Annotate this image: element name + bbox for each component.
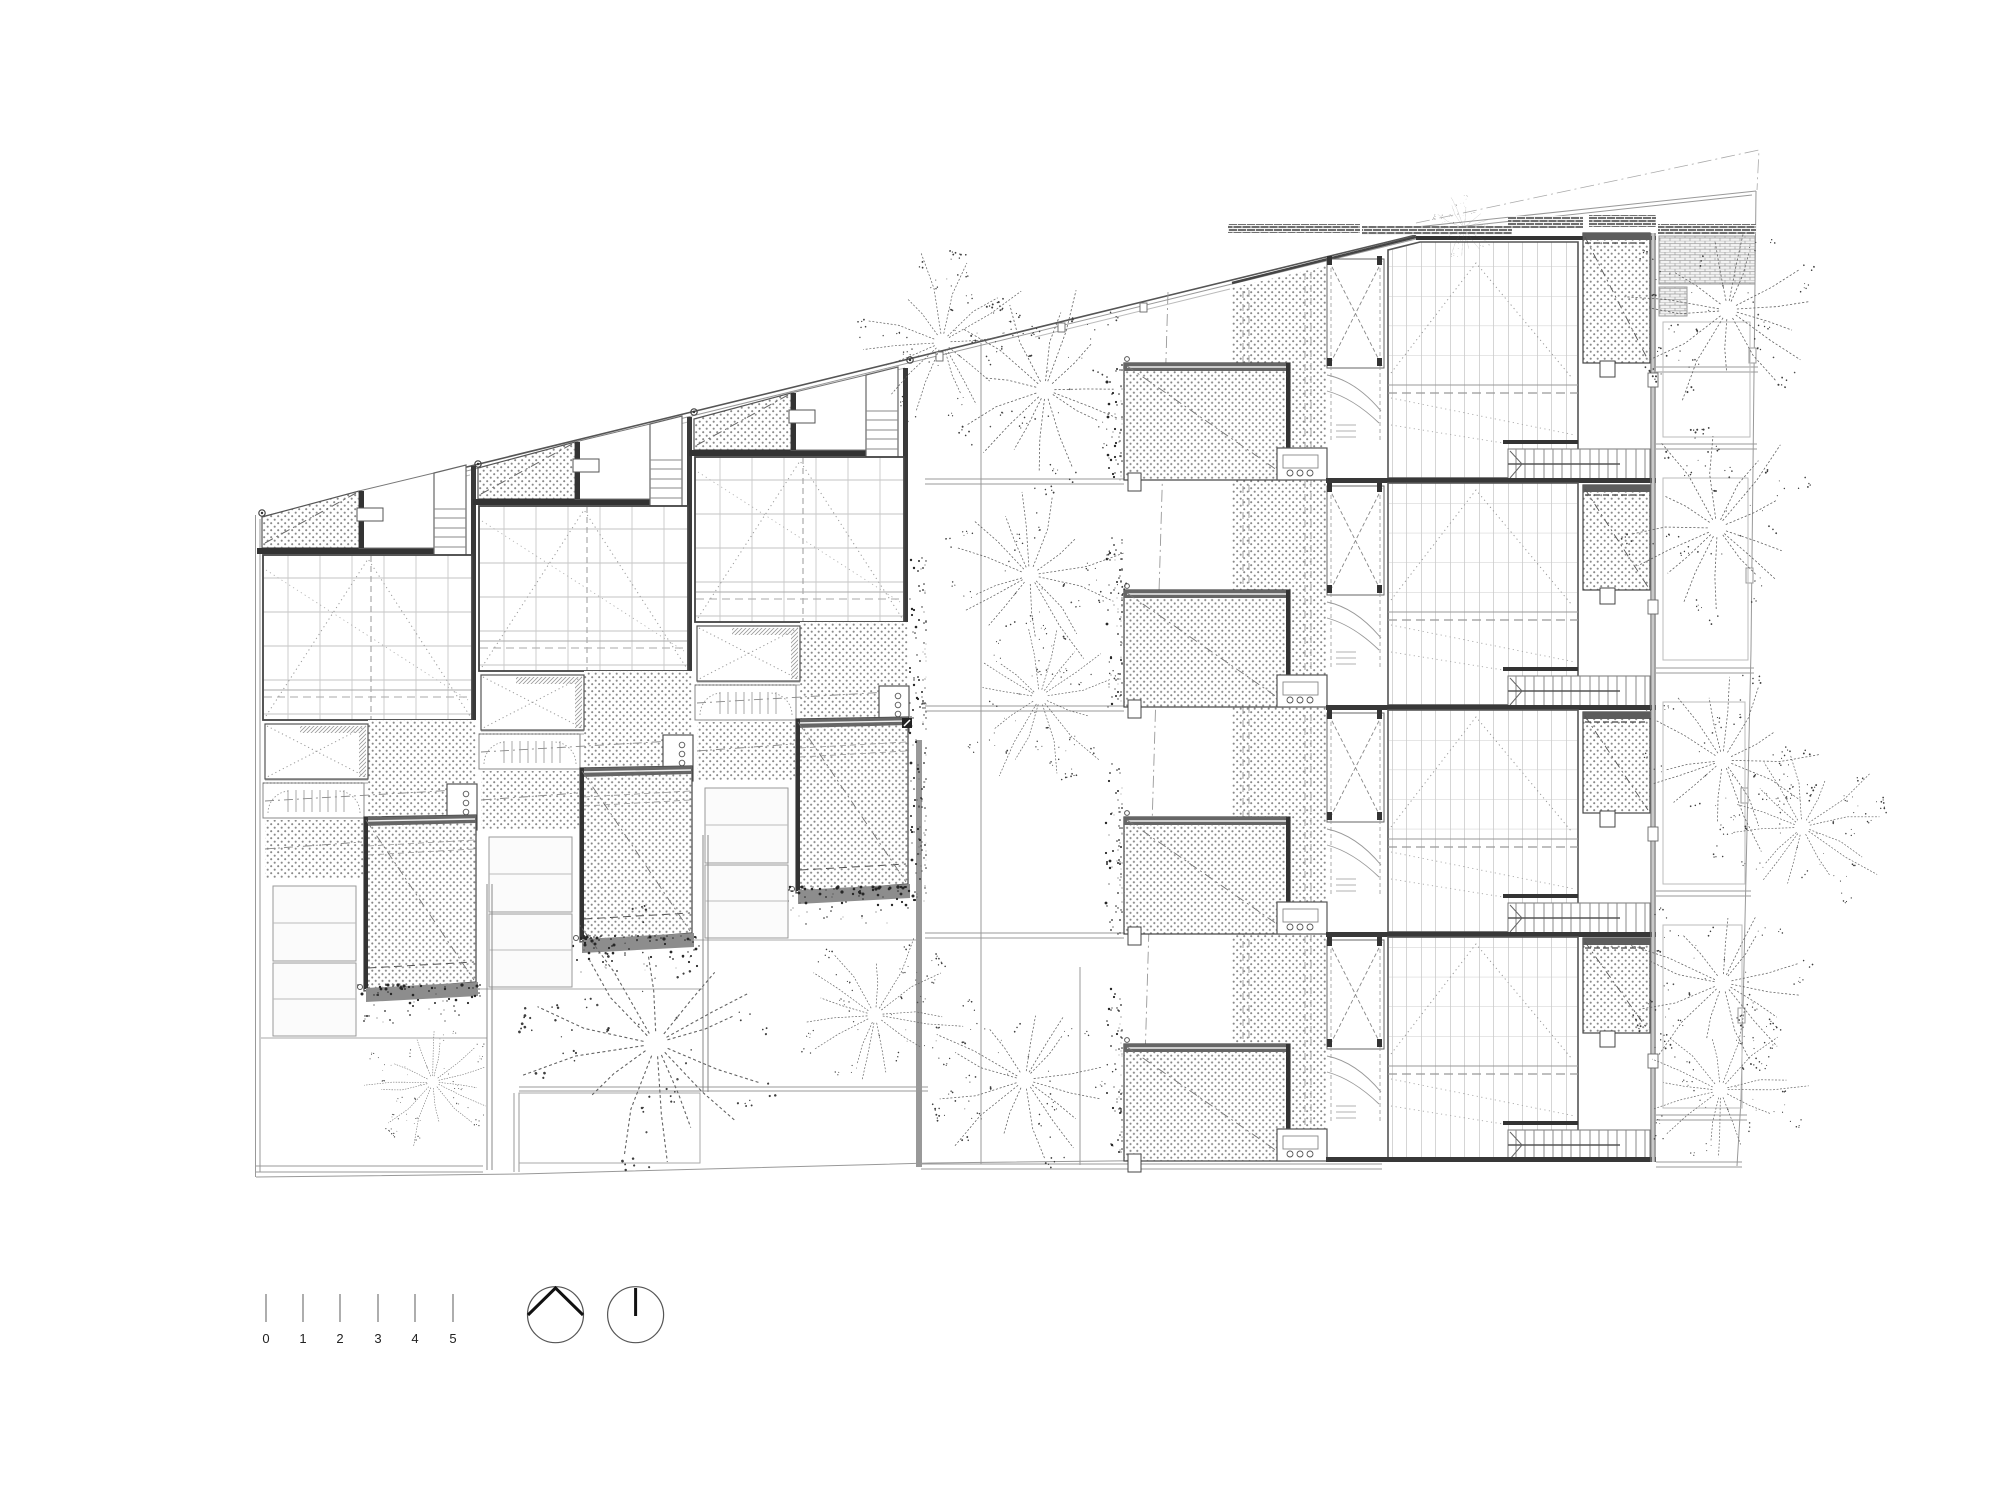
svg-text:4: 4 [411,1331,418,1346]
svg-text:0: 0 [262,1331,269,1346]
svg-text:3: 3 [374,1331,381,1346]
svg-text:2: 2 [336,1331,343,1346]
svg-text:5: 5 [449,1331,456,1346]
svg-text:1: 1 [299,1331,306,1346]
